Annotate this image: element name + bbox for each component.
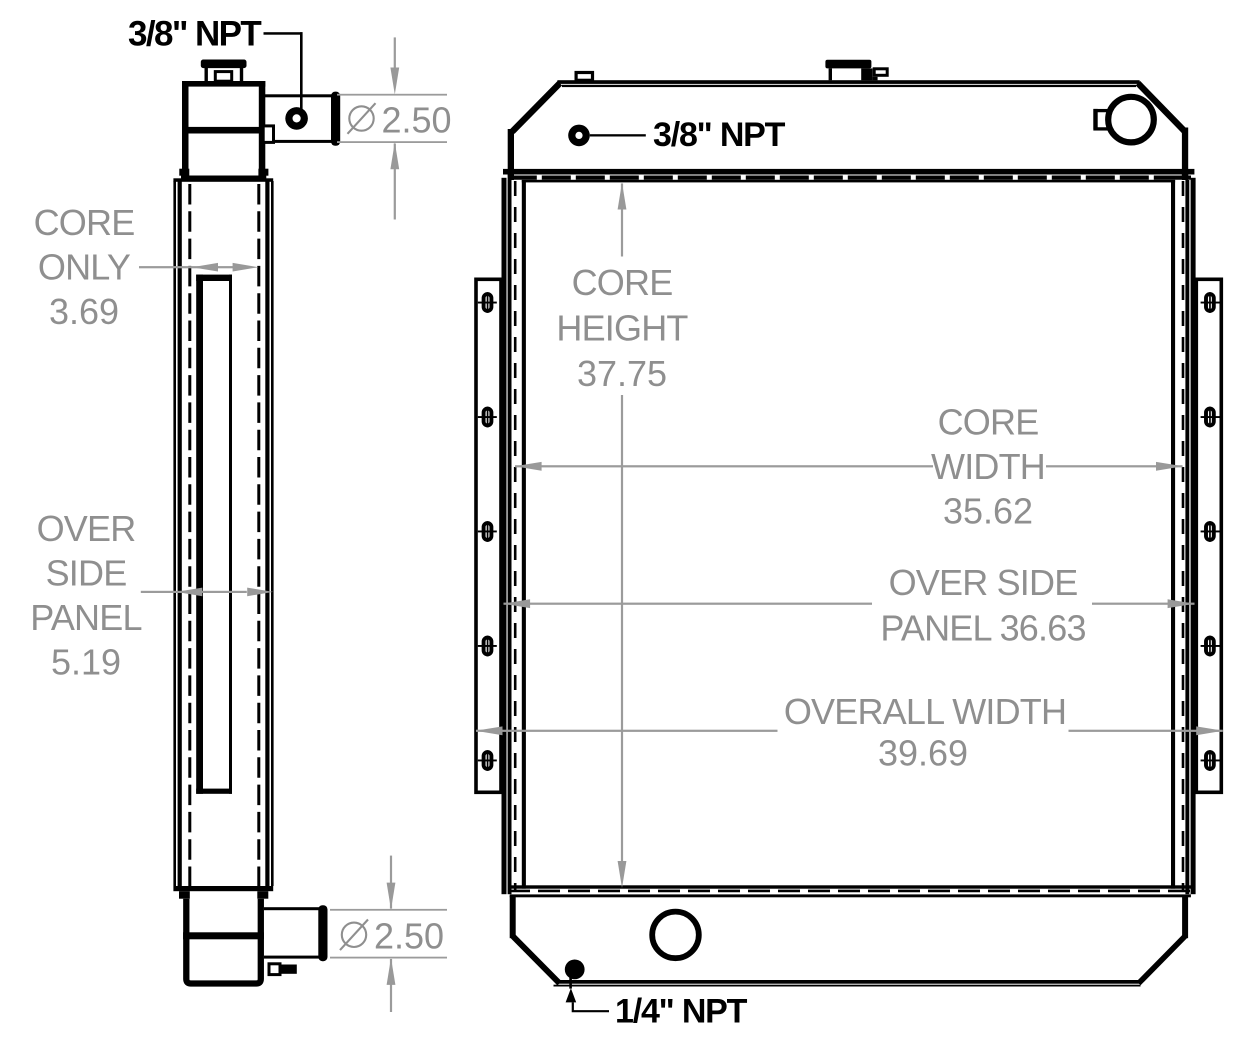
svg-text:35.62: 35.62 (943, 490, 1033, 531)
svg-text:3.69: 3.69 (49, 291, 119, 332)
svg-text:3/8" NPT: 3/8" NPT (128, 15, 261, 54)
svg-text:OVERALL WIDTH: OVERALL WIDTH (784, 691, 1066, 732)
svg-text:PANEL 36.63: PANEL 36.63 (880, 607, 1085, 648)
svg-text:CORE: CORE (34, 202, 135, 243)
svg-text:5.19: 5.19 (51, 642, 121, 683)
svg-text:3/8" NPT: 3/8" NPT (653, 116, 786, 154)
svg-text:CORE: CORE (938, 401, 1039, 442)
svg-text:CORE: CORE (572, 262, 673, 303)
svg-text:PANEL: PANEL (30, 597, 141, 638)
svg-text:SIDE: SIDE (46, 553, 127, 594)
svg-text:2.50: 2.50 (382, 99, 452, 140)
svg-text:39.69: 39.69 (878, 732, 968, 773)
svg-text:OVER: OVER (37, 508, 136, 549)
svg-text:OVER SIDE: OVER SIDE (889, 562, 1078, 603)
svg-text:37.75: 37.75 (577, 353, 667, 394)
svg-text:HEIGHT: HEIGHT (556, 307, 688, 348)
svg-text:WIDTH: WIDTH (931, 446, 1045, 487)
svg-text:2.50: 2.50 (374, 916, 444, 957)
svg-text:ONLY: ONLY (38, 247, 131, 288)
svg-text:1/4" NPT: 1/4" NPT (615, 992, 748, 1030)
